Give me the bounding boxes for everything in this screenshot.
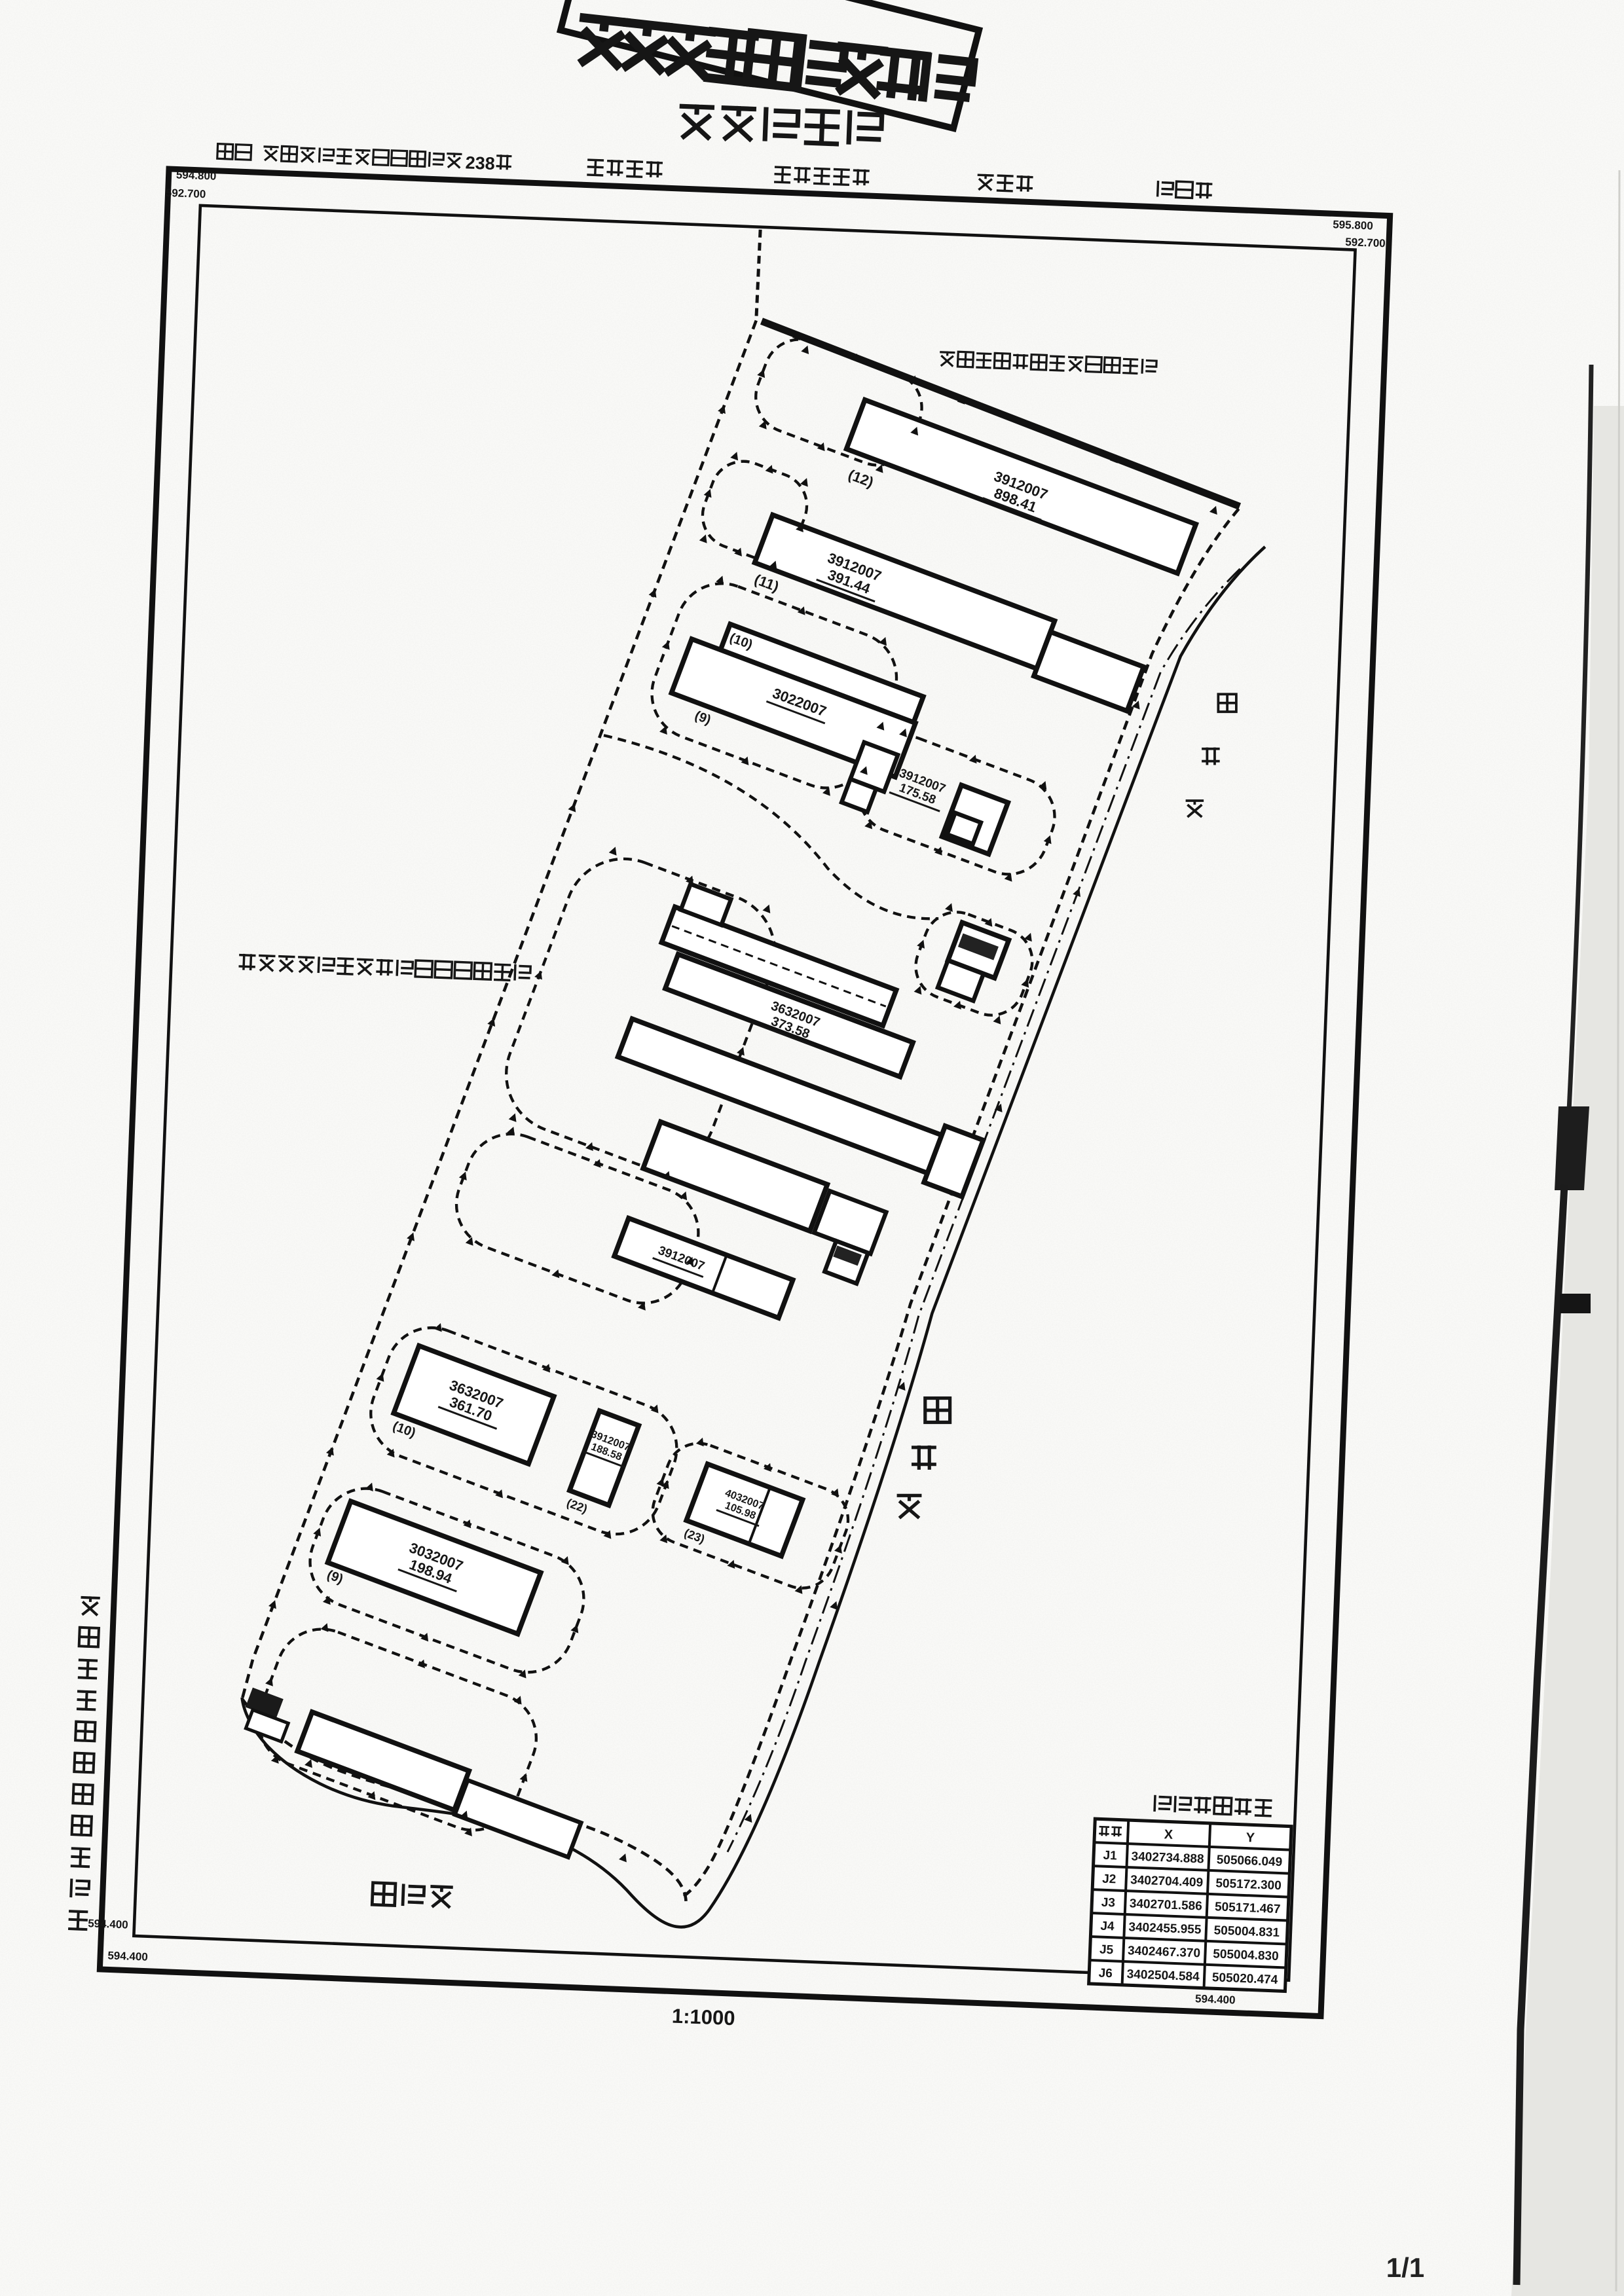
svg-text:J4: J4 <box>1100 1920 1115 1934</box>
svg-text:505172.300: 505172.300 <box>1215 1876 1282 1893</box>
svg-text:Y: Y <box>1246 1831 1255 1846</box>
svg-text:594.800: 594.800 <box>176 168 217 182</box>
svg-text:1/1: 1/1 <box>1386 2252 1424 2283</box>
svg-text:592.700: 592.700 <box>166 187 206 200</box>
svg-text:594.400: 594.400 <box>107 1949 148 1963</box>
svg-text:J5: J5 <box>1099 1943 1114 1958</box>
svg-text:505066.049: 505066.049 <box>1216 1853 1282 1869</box>
svg-text:505020.474: 505020.474 <box>1212 1971 1279 1987</box>
svg-text:3402704.409: 3402704.409 <box>1130 1873 1204 1889</box>
svg-text:505004.830: 505004.830 <box>1213 1947 1279 1963</box>
svg-text:3402467.370: 3402467.370 <box>1128 1944 1201 1960</box>
svg-text:3402734.888: 3402734.888 <box>1131 1850 1204 1866</box>
svg-text:J6: J6 <box>1098 1967 1113 1981</box>
svg-text:505004.831: 505004.831 <box>1213 1923 1280 1940</box>
svg-text:J3: J3 <box>1101 1896 1115 1910</box>
svg-text:J1: J1 <box>1103 1849 1117 1863</box>
svg-text:594.400: 594.400 <box>88 1917 128 1931</box>
svg-text:3402504.584: 3402504.584 <box>1126 1967 1200 1984</box>
svg-text:505171.467: 505171.467 <box>1215 1900 1281 1916</box>
svg-text:3402455.955: 3402455.955 <box>1128 1920 1202 1937</box>
svg-text:3402701.586: 3402701.586 <box>1129 1897 1202 1913</box>
svg-text:238: 238 <box>465 153 495 173</box>
svg-text:J2: J2 <box>1102 1872 1116 1887</box>
svg-text:1:1000: 1:1000 <box>671 2005 735 2030</box>
svg-text:592.700: 592.700 <box>1345 236 1386 249</box>
svg-text:X: X <box>1164 1827 1173 1842</box>
svg-text:595.800: 595.800 <box>1333 218 1373 232</box>
svg-text:594.400: 594.400 <box>1195 1992 1236 2006</box>
